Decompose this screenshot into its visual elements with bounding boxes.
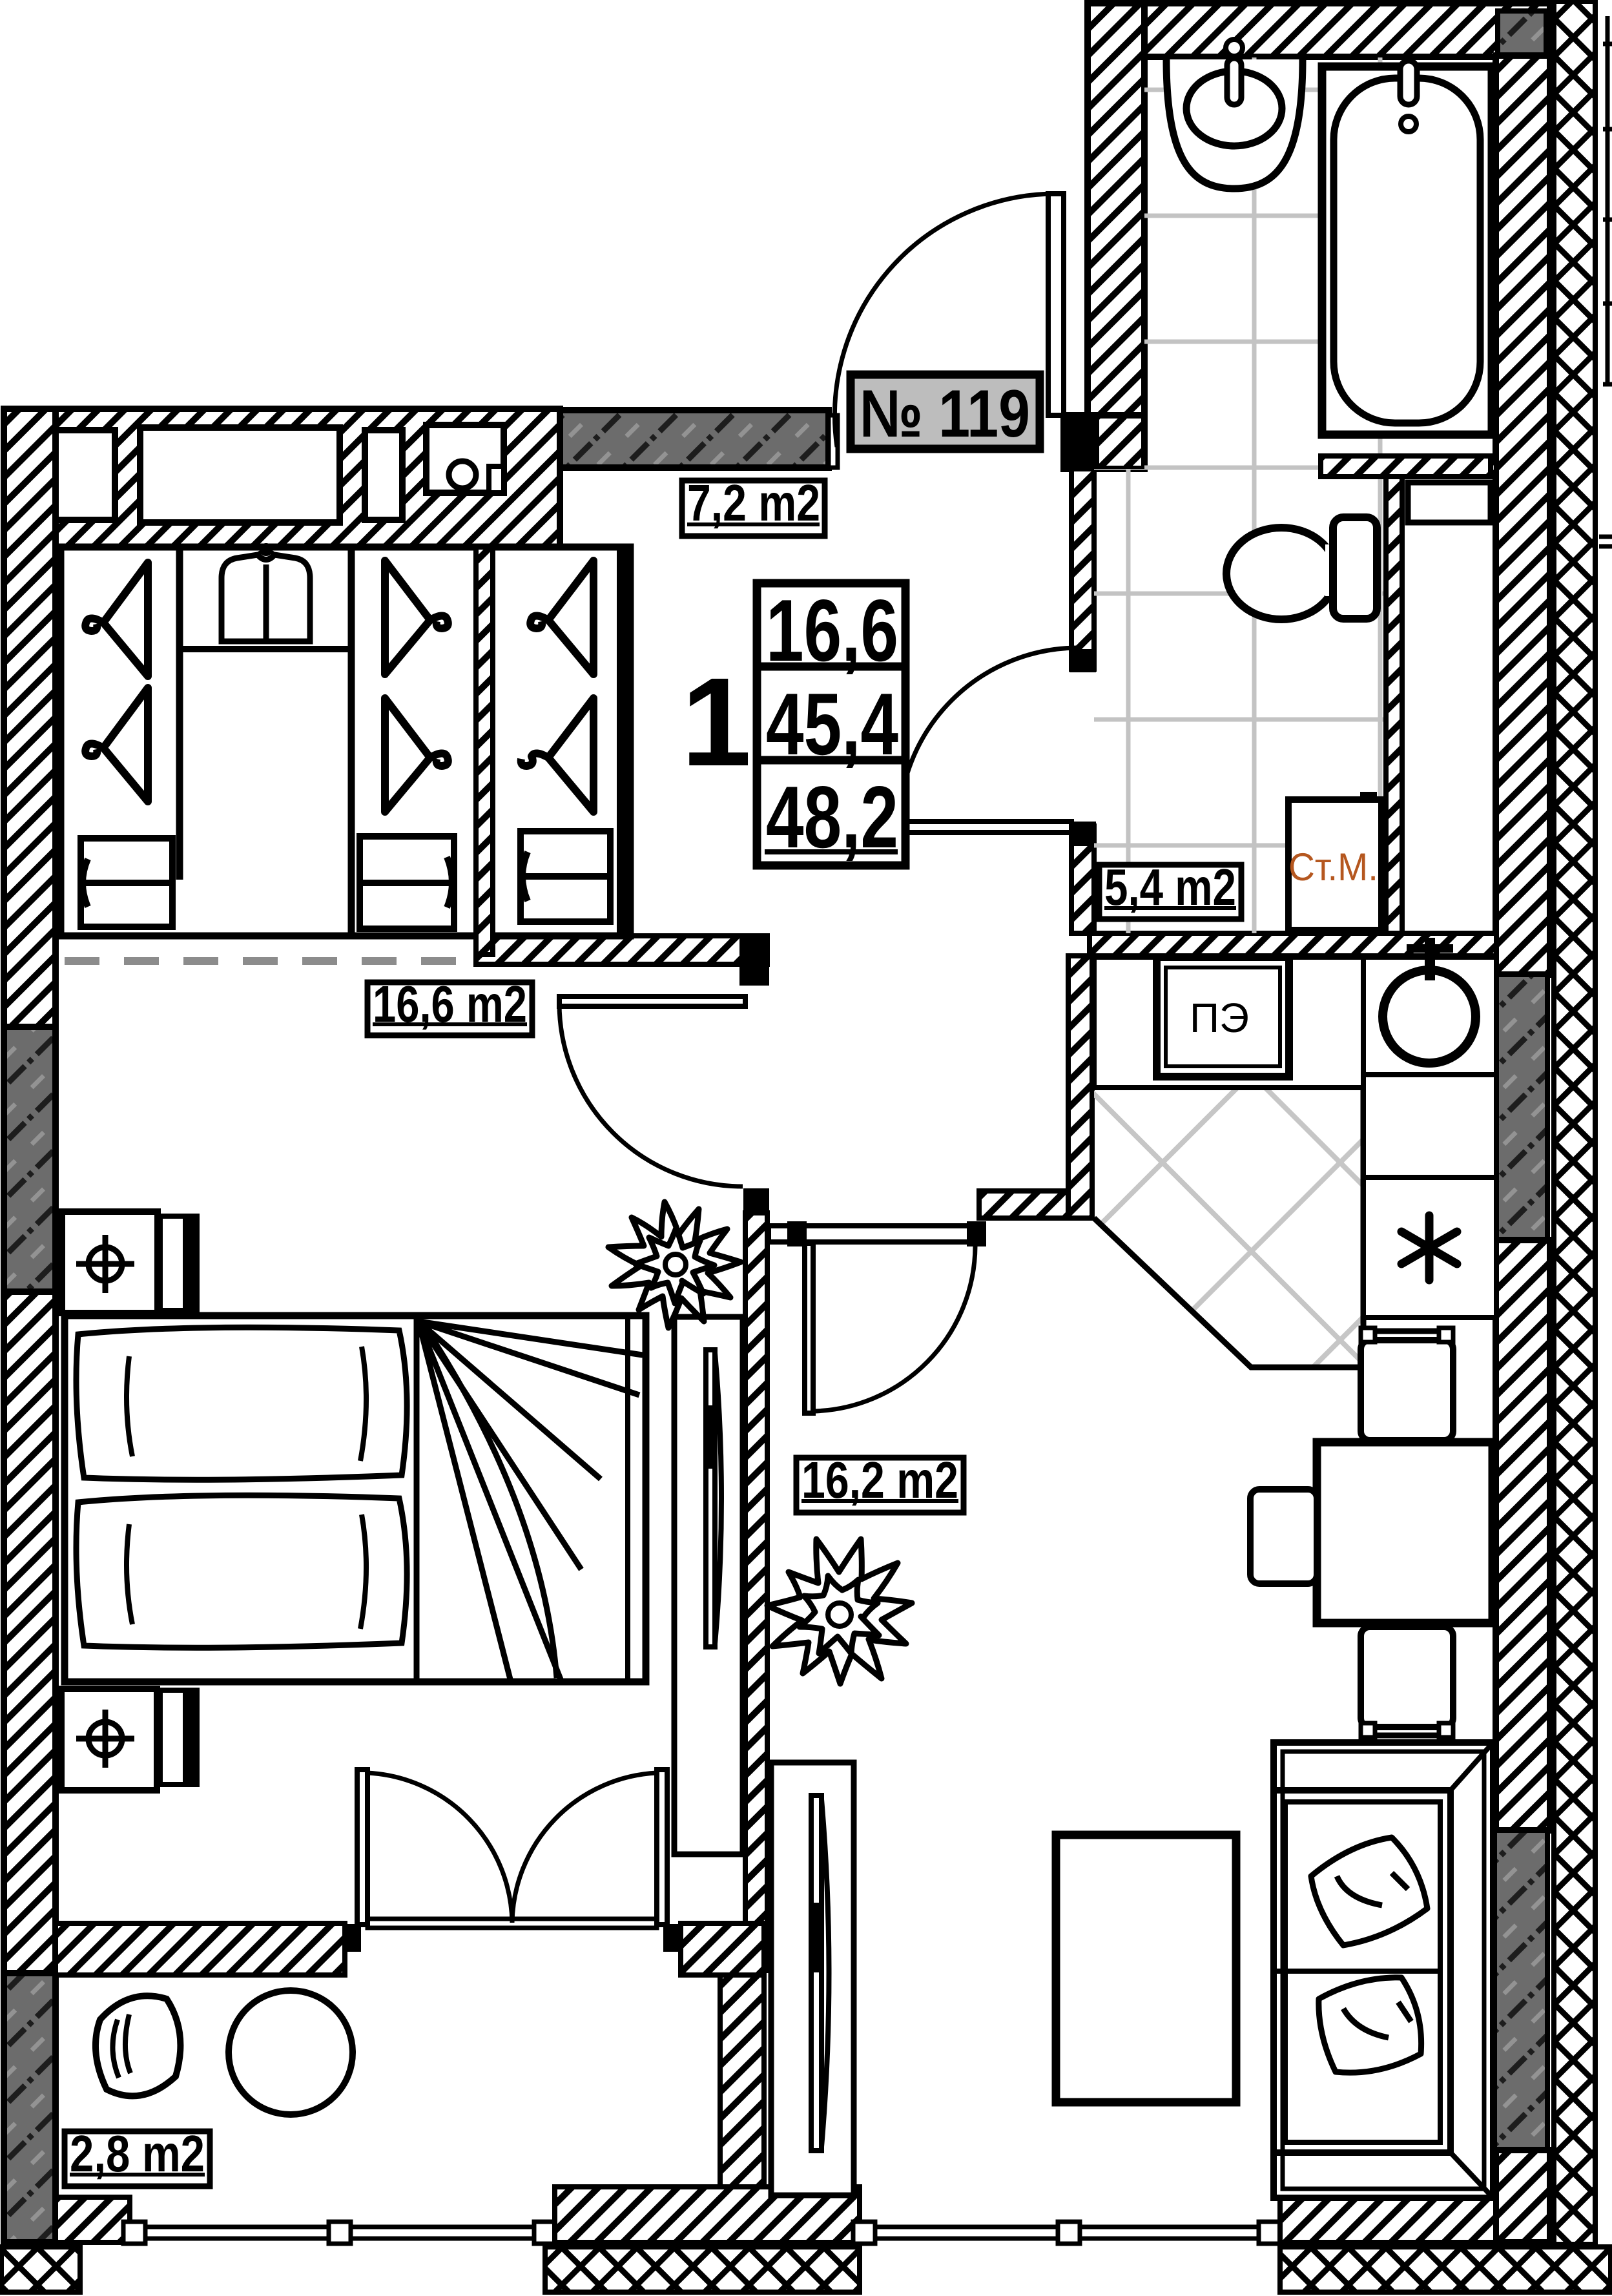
svg-text:45,4: 45,4: [766, 675, 898, 773]
svg-text:2,8 m2: 2,8 m2: [70, 2125, 205, 2182]
svg-text:1: 1: [681, 652, 751, 792]
svg-text:16,6: 16,6: [766, 581, 898, 679]
svg-text:Ст.М.: Ст.М.: [1288, 845, 1378, 889]
svg-text:16,6 m2: 16,6 m2: [373, 975, 527, 1033]
svg-text:ПЭ: ПЭ: [1190, 995, 1249, 1041]
svg-text:№ 119: № 119: [860, 377, 1030, 451]
svg-text:7,2 m2: 7,2 m2: [687, 474, 820, 532]
svg-text:48,2: 48,2: [766, 768, 898, 866]
svg-text:16,2 m2: 16,2 m2: [801, 1451, 958, 1509]
svg-text:5,4 m2: 5,4 m2: [1104, 858, 1236, 916]
